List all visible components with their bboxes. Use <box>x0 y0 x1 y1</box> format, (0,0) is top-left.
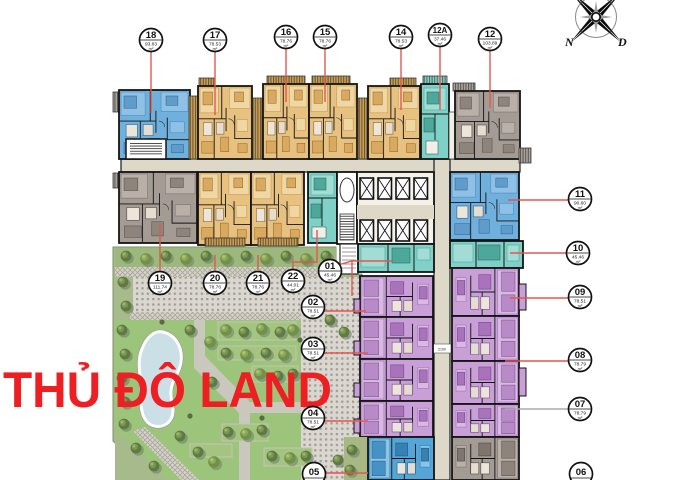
svg-text:m²: m² <box>438 41 443 46</box>
svg-text:m²: m² <box>399 43 404 48</box>
svg-text:m²: m² <box>488 45 493 50</box>
svg-text:11: 11 <box>575 189 586 200</box>
svg-text:18: 18 <box>146 30 157 41</box>
svg-text:20: 20 <box>210 273 221 284</box>
svg-text:m²: m² <box>149 46 154 51</box>
svg-text:21: 21 <box>253 273 264 284</box>
svg-text:m²: m² <box>291 287 296 292</box>
svg-text:08: 08 <box>575 350 586 361</box>
svg-text:01: 01 <box>325 261 336 272</box>
svg-text:04: 04 <box>308 408 319 419</box>
svg-text:m²: m² <box>323 43 328 48</box>
svg-text:m²: m² <box>284 43 289 48</box>
svg-text:07: 07 <box>575 399 586 410</box>
svg-text:12A: 12A <box>433 26 448 35</box>
svg-text:15: 15 <box>320 27 331 38</box>
svg-text:19: 19 <box>155 273 166 284</box>
svg-text:THỦ ĐÔ LAND: THỦ ĐÔ LAND <box>3 361 332 418</box>
svg-text:05: 05 <box>309 467 320 478</box>
svg-text:m²: m² <box>576 259 581 264</box>
svg-text:N: N <box>564 35 575 49</box>
svg-text:m²: m² <box>578 303 583 308</box>
svg-text:14: 14 <box>396 27 407 38</box>
svg-text:12: 12 <box>485 29 496 40</box>
svg-text:m²: m² <box>213 46 218 51</box>
svg-text:m²: m² <box>256 289 261 294</box>
svg-text:m²: m² <box>578 366 583 371</box>
svg-text:10: 10 <box>573 243 584 254</box>
svg-text:09: 09 <box>575 287 586 298</box>
svg-text:02: 02 <box>308 297 319 308</box>
svg-text:16: 16 <box>281 27 292 38</box>
svg-text:m²: m² <box>578 415 583 420</box>
svg-text:m²: m² <box>213 289 218 294</box>
svg-text:m²: m² <box>311 313 316 318</box>
svg-text:m²: m² <box>578 205 583 210</box>
svg-text:m²: m² <box>311 355 316 360</box>
svg-text:m²: m² <box>158 289 163 294</box>
svg-text:m²: m² <box>328 277 333 282</box>
svg-text:D: D <box>617 35 627 49</box>
svg-text:03: 03 <box>308 339 319 350</box>
svg-text:22: 22 <box>288 271 299 282</box>
svg-text:17: 17 <box>210 30 221 41</box>
svg-text:m²: m² <box>311 424 316 429</box>
svg-text:06: 06 <box>576 467 587 478</box>
svg-text:2100: 2100 <box>438 348 446 352</box>
